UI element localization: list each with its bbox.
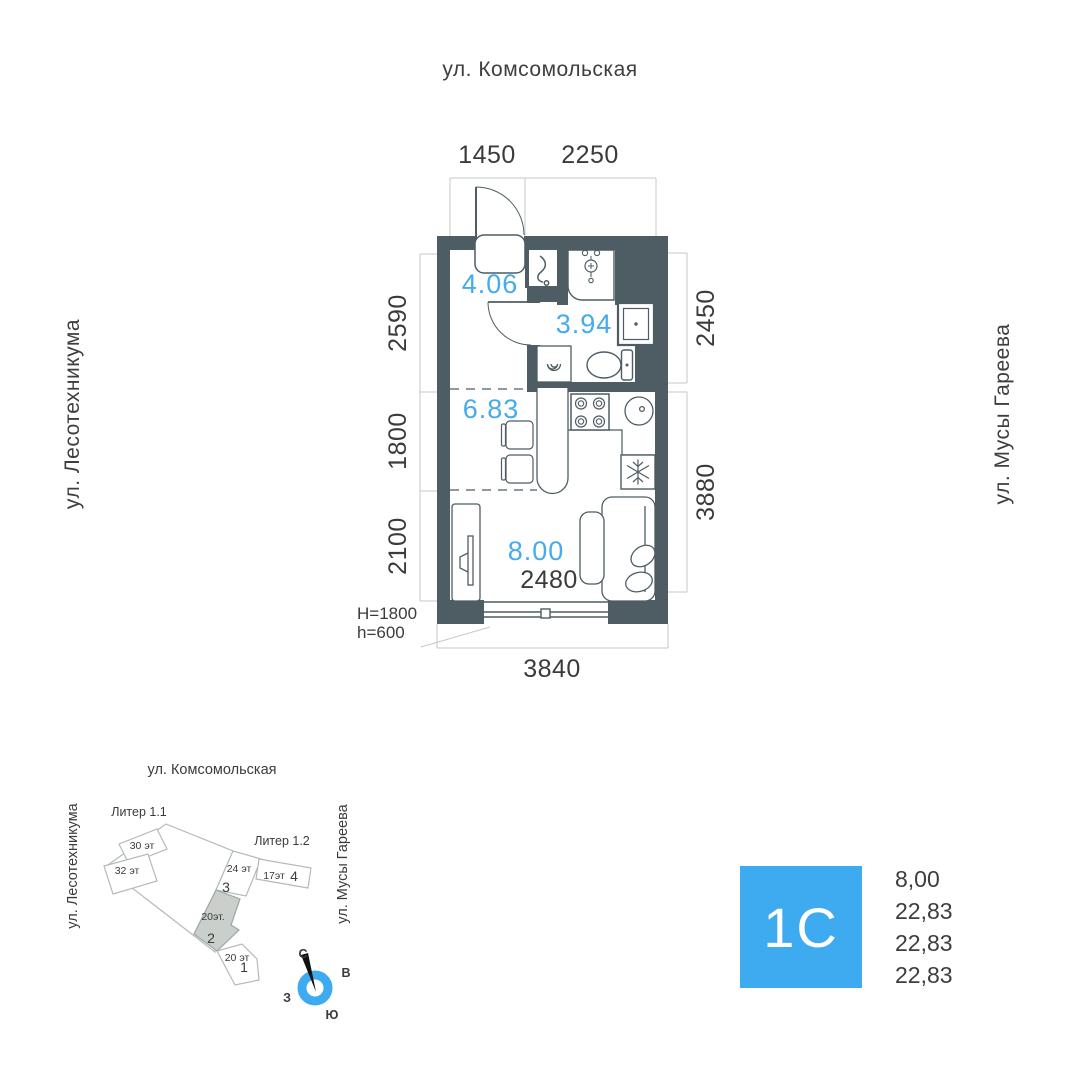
- dim-left-2: 1800: [384, 412, 412, 470]
- area-hallway: 4.06: [462, 269, 519, 299]
- bath-door-opening: [527, 303, 540, 345]
- dim-inner: 2480: [520, 566, 578, 594]
- dim-right-2: 3880: [692, 463, 720, 521]
- bar-counter: [537, 388, 568, 494]
- compass-east: В: [341, 966, 350, 980]
- unit-value-total-3: 22,83: [895, 962, 953, 988]
- shaft-box: [618, 303, 654, 345]
- unit-type-badge: 1С: [740, 866, 862, 988]
- bathroom-door: [488, 302, 531, 345]
- unit-value-total-2: 22,83: [895, 930, 953, 956]
- kitchen-sink-icon: [625, 397, 653, 425]
- window-sill-note: h=600: [357, 623, 405, 642]
- site-floors-20a: 20эт.: [201, 911, 224, 923]
- dim-right-1: 2450: [692, 289, 720, 347]
- site-num-4: 4: [290, 868, 298, 884]
- street-label-left: ул. Лесотехникума: [61, 298, 87, 530]
- area-bathroom: 3.94: [556, 309, 613, 339]
- unit-type-label: 1С: [763, 895, 839, 960]
- entry-cabinet: [475, 235, 525, 273]
- tv-stand: [452, 504, 480, 601]
- site-floors-30: 30 эт: [130, 840, 155, 852]
- dim-left-1: 2590: [384, 294, 412, 352]
- site-floors-17: 17эт: [263, 870, 285, 882]
- floorplan-page: ул. Комсомольская ул. Лесотехникума ул. …: [0, 0, 1080, 1080]
- floor-plan: 1450 2250 2590 1800 2100 2450 3880 3840 …: [340, 130, 760, 690]
- compass-north: С: [298, 947, 307, 961]
- stove-icon: [571, 394, 609, 430]
- unit-value-living: 8,00: [895, 866, 953, 892]
- site-floors-32: 32 эт: [115, 865, 140, 877]
- unit-values: 8,00 22,83 22,83 22,83: [895, 866, 953, 988]
- compass-south: Ю: [326, 1008, 339, 1022]
- washing-machine-icon: [537, 346, 571, 382]
- entrance-door: [476, 187, 524, 236]
- area-living: 8.00: [508, 536, 565, 566]
- dim-bottom: 3840: [523, 655, 581, 683]
- site-street-left: ул. Лесотехникума: [65, 802, 81, 928]
- site-plan: ул. Комсомольская ул. Лесотехникума ул. …: [40, 740, 370, 1040]
- compass: С В З Ю: [283, 947, 350, 1022]
- dim-left-3: 2100: [384, 517, 412, 575]
- unit-value-total-1: 22,83: [895, 898, 953, 924]
- compass-west: З: [283, 991, 291, 1005]
- site-liter2-label: Литер 1.2: [254, 834, 310, 848]
- fridge-icon: [621, 455, 655, 489]
- street-label-right: ул. Мусы Гареева: [991, 298, 1017, 530]
- coat-hook-icon: [538, 256, 549, 285]
- site-liter1-label: Литер 1.1: [111, 805, 167, 819]
- site-building-1: [217, 944, 259, 985]
- toilet-icon: [587, 350, 633, 380]
- street-label-top: ул. Комсомольская: [340, 58, 740, 82]
- site-num-2: 2: [207, 930, 215, 946]
- sofa: [580, 497, 659, 601]
- site-street-right: ул. Мусы Гареева: [335, 803, 351, 923]
- bath-sink-icon: [568, 250, 614, 300]
- chairs: [502, 421, 534, 483]
- dim-top-2: 2250: [561, 141, 619, 169]
- window-height-note: H=1800: [357, 604, 417, 623]
- site-num-1: 1: [240, 959, 248, 975]
- site-street-top: ул. Комсомольская: [148, 762, 277, 778]
- dim-top-1: 1450: [458, 141, 516, 169]
- site-floors-24: 24 эт: [227, 863, 252, 875]
- site-num-3: 3: [222, 879, 230, 895]
- area-kitchen: 6.83: [463, 394, 520, 424]
